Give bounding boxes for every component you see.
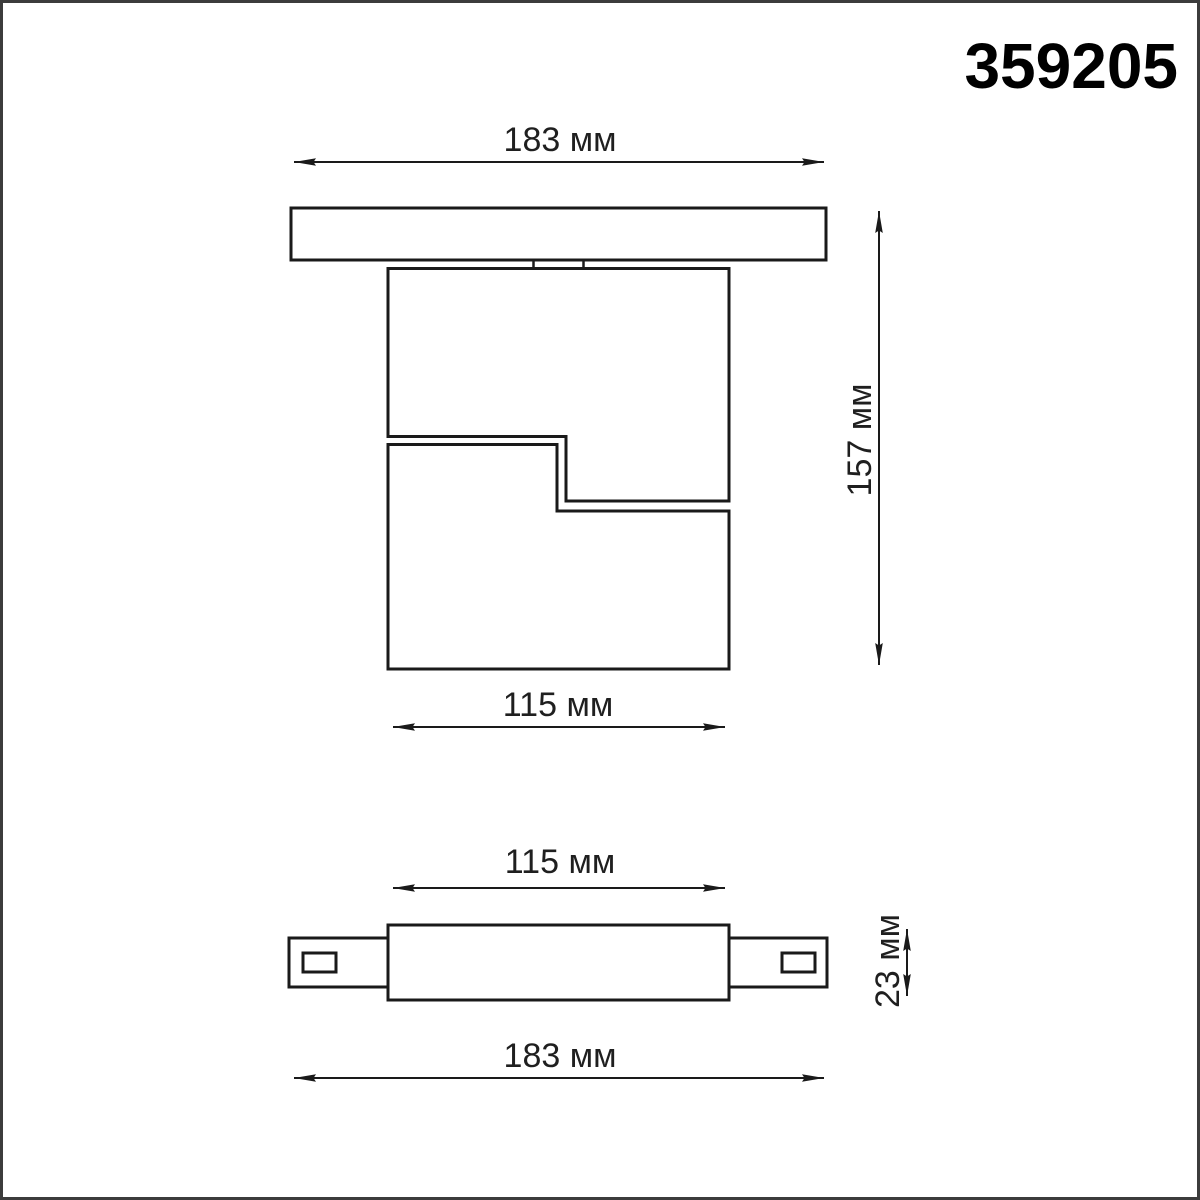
dim-label-total-height: 157 мм (841, 384, 879, 497)
dim-label-track-width-top: 183 мм (504, 121, 617, 159)
dim-label-track-width-bottom: 183 мм (504, 1037, 617, 1075)
technical-drawing-page: 183 мм 157 мм 115 мм 115 мм (0, 0, 1200, 1200)
connector-slot-left (303, 953, 336, 972)
dim-label-connector-height: 23 мм (869, 914, 907, 1008)
bottom-view: 115 мм 23 мм 183 мм (289, 843, 907, 1078)
dim-label-body-width: 115 мм (503, 686, 613, 724)
connector-slot-right (782, 953, 815, 972)
dim-label-connector-body-width: 115 мм (505, 843, 615, 881)
track-rail-profile (291, 208, 826, 260)
connector-body (388, 925, 729, 1000)
side-view: 183 мм 157 мм 115 мм (291, 121, 879, 727)
product-code: 359205 (964, 30, 1178, 102)
drawing-svg: 183 мм 157 мм 115 мм 115 мм (0, 0, 1200, 1200)
